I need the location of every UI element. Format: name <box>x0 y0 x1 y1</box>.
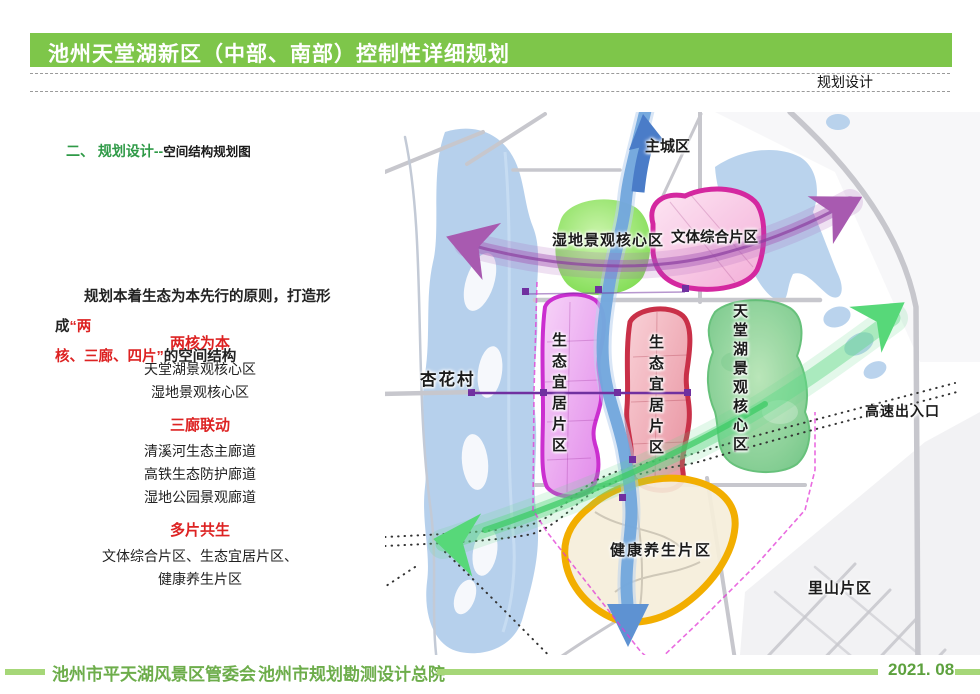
list-item: 文体综合片区、生态宜居片区、 <box>40 545 360 568</box>
section-heading-black: 空间结构规划图 <box>163 145 251 159</box>
footer-date: 2021. 08 <box>888 660 954 680</box>
river-arrow-south <box>607 604 649 647</box>
group-multi-districts: 多片共生 文体综合片区、生态宜居片区、 健康养生片区 <box>40 521 360 591</box>
group-title: 两核为本 <box>40 334 360 353</box>
group-title: 三廊联动 <box>40 416 360 435</box>
plan-slide: 池州天堂湖新区（中部、南部）控制性详细规划 规划设计 二、 规划设计--空间结构… <box>0 0 980 694</box>
list-item: 天堂湖景观核心区 <box>40 358 360 381</box>
footer-bar-left <box>5 669 45 675</box>
metro-station <box>614 389 621 396</box>
label-culture-zone: 文体综合片区 <box>671 226 758 247</box>
list-item: 湿地景观核心区 <box>40 381 360 404</box>
pond <box>861 358 890 383</box>
road <box>385 392 477 394</box>
footer-org-1: 池州市平天湖风景区管委会 <box>52 660 256 685</box>
metro-station <box>540 389 547 396</box>
group-two-cores: 两核为本 天堂湖景观核心区 湿地景观核心区 <box>40 334 360 404</box>
footer-org-2: 池州市规划勘测设计总院 <box>258 660 445 685</box>
metro-station <box>684 389 691 396</box>
list-item: 健康养生片区 <box>40 568 360 591</box>
road <box>533 617 623 655</box>
metro-station <box>468 389 475 396</box>
metro-line-path <box>525 292 685 294</box>
section-heading-green: 二、 规划设计-- <box>66 143 163 159</box>
label-health-zone: 健康养生片区 <box>610 539 712 560</box>
list-item: 湿地公园景观廊道 <box>40 486 360 509</box>
list-item: 高铁生态防护廊道 <box>40 463 360 486</box>
dashed-rule-bottom <box>30 91 950 92</box>
intro-line-1: 规划本着生态为本先行的原则，打造形成“两 <box>55 282 360 342</box>
label-tiantang-core: 天堂湖景观核心区 <box>729 303 750 455</box>
group-title: 多片共生 <box>40 521 360 540</box>
chapter-label: 规划设计 <box>800 74 890 91</box>
label-main-city: 主城区 <box>645 135 690 156</box>
page-title: 池州天堂湖新区（中部、南部）控制性详细规划 <box>48 38 510 68</box>
group-three-corridors: 三廊联动 清溪河生态主廊道 高铁生态防护廊道 湿地公园景观廊道 <box>40 416 360 509</box>
label-xinghua-village: 杏花村 <box>420 366 476 390</box>
label-eco-residential-central: 生态宜居片区 <box>645 334 666 460</box>
structure-list: 两核为本 天堂湖景观核心区 湿地景观核心区 三廊联动 清溪河生态主廊道 高铁生态… <box>40 334 360 603</box>
metro-station <box>629 456 636 463</box>
label-highway-exit: 高速出入口 <box>865 401 940 421</box>
list-item: 清溪河生态主廊道 <box>40 440 360 463</box>
footer-bar-right <box>955 669 980 675</box>
railway-branch <box>385 567 415 590</box>
pond <box>826 114 850 130</box>
road <box>660 114 701 202</box>
metro-station <box>595 286 602 293</box>
metro-station <box>522 288 529 295</box>
pond <box>820 303 853 331</box>
label-lishan-zone: 里山片区 <box>808 577 872 598</box>
label-wetland-core: 湿地景观核心区 <box>552 229 664 250</box>
metro-station <box>682 285 689 292</box>
section-heading: 二、 规划设计--空间结构规划图 <box>66 141 251 161</box>
footer-bar-middle <box>437 669 878 675</box>
metro-station <box>619 494 626 501</box>
label-eco-residential-west: 生态宜居片区 <box>548 332 569 458</box>
